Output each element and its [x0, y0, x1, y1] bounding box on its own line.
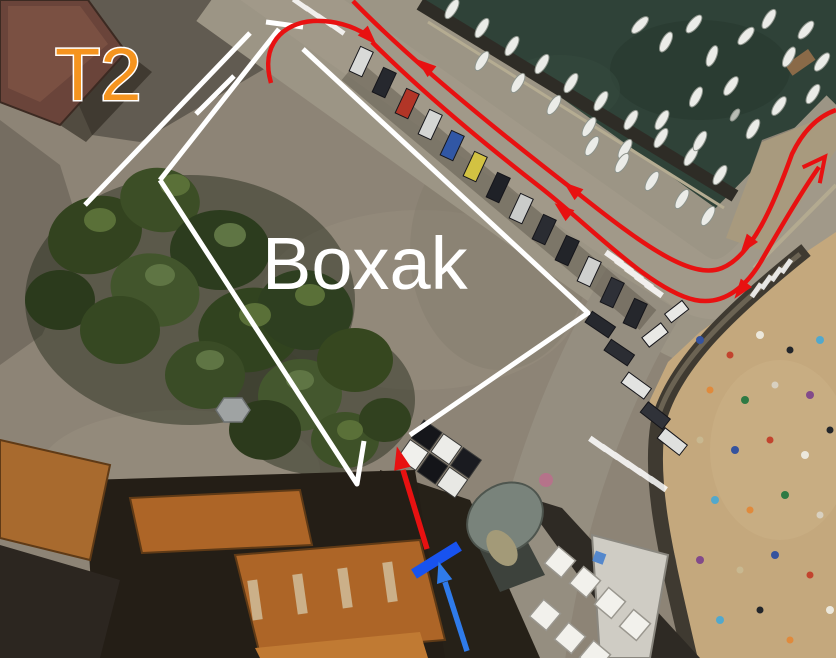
area-label: Boxak	[262, 222, 469, 305]
plaza-monument	[216, 398, 250, 422]
aerial-map: T2 Boxak	[0, 0, 836, 658]
territory-label: T2	[55, 33, 141, 116]
